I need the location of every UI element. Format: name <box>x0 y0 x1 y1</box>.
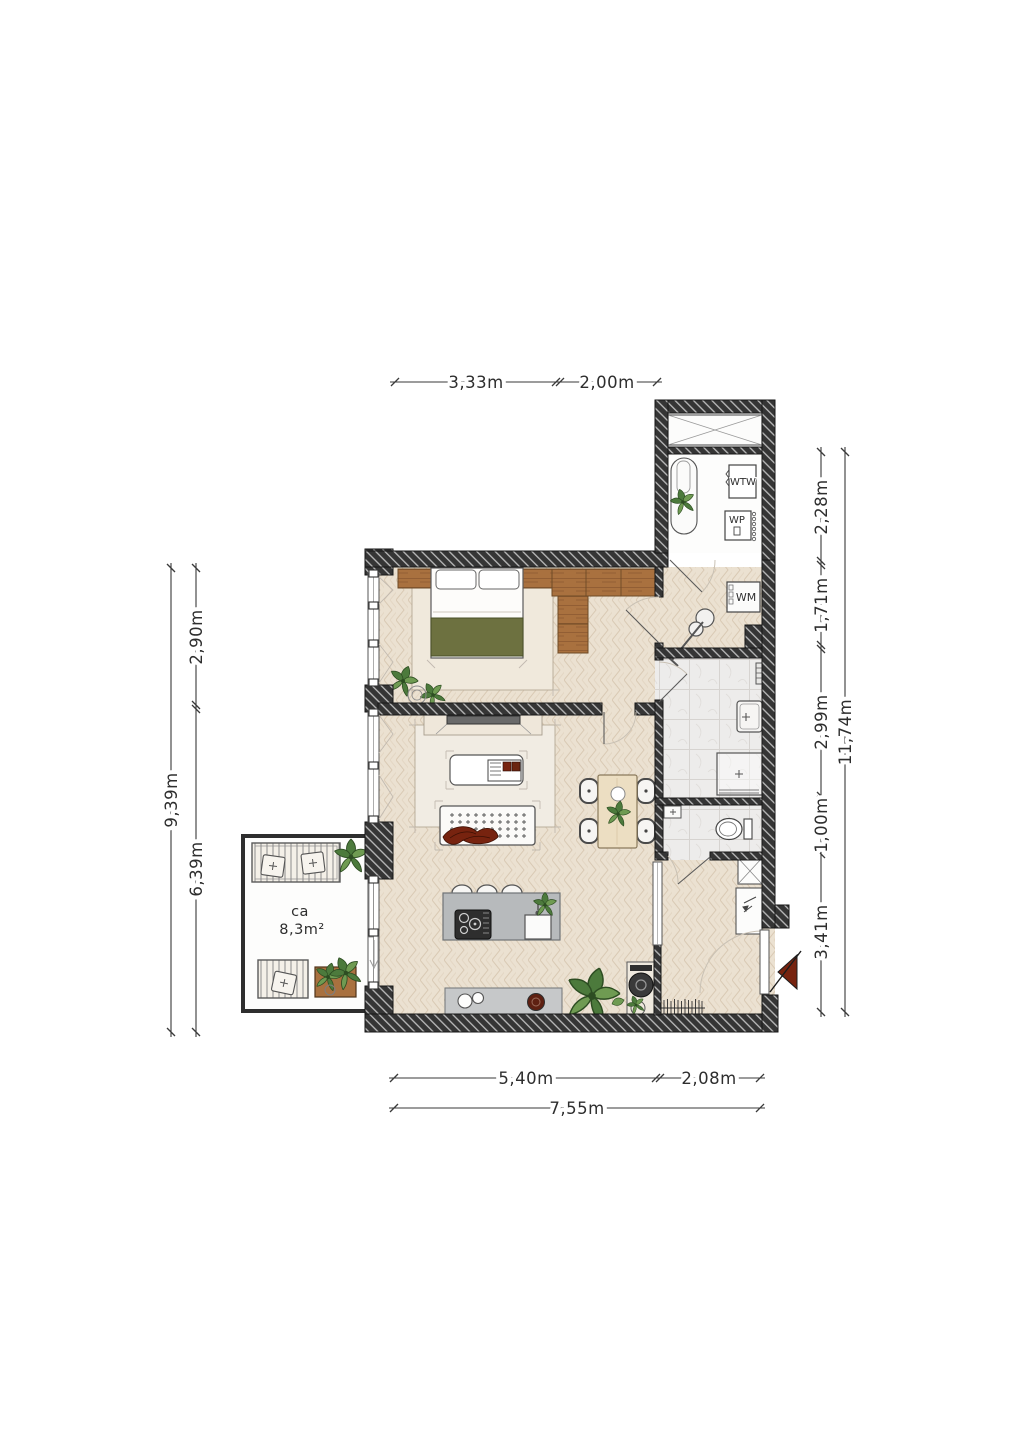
wtw-unit: WTW <box>726 465 756 498</box>
nightstand-left <box>398 569 431 588</box>
tv-unit <box>424 713 542 735</box>
dim-left-2: 6,39m <box>187 841 206 896</box>
kitchen-counter <box>445 988 562 1016</box>
dim-bottom: 5,40m 2,08m 7,55m <box>389 1069 765 1118</box>
balcony-bench-top <box>252 843 340 882</box>
dim-right-4: 1,00m <box>812 797 831 852</box>
bed-blanket <box>431 618 523 656</box>
dim-bottom-2: 2,08m <box>681 1069 736 1088</box>
dim-top: 3,33m 2,00m <box>390 373 662 392</box>
bathroom-sink <box>737 701 762 732</box>
balcony-sliding-door <box>368 876 379 989</box>
intercom-box <box>736 888 762 934</box>
toilet-sink <box>664 806 681 818</box>
storage-shaft <box>668 415 762 445</box>
shower <box>717 753 762 795</box>
coffee-table <box>446 751 527 789</box>
tv <box>447 716 520 724</box>
dim-right-5: 3,41m <box>812 904 831 959</box>
dim-right: 2,28m 1,71m 2,99m 1,00m 3,41m 11,74m <box>812 447 855 1017</box>
dim-right-2: 1,71m <box>812 577 831 632</box>
dim-top-2: 2,00m <box>579 373 634 392</box>
floor-plan-page: ca 8,3m² <box>0 0 1018 1440</box>
dim-top-1: 3,33m <box>448 373 503 392</box>
sofa <box>435 801 540 850</box>
dim-left-1: 2,90m <box>187 609 206 664</box>
dim-right-1: 2,28m <box>812 479 831 534</box>
nightstand-right <box>523 569 552 588</box>
bed <box>427 568 527 668</box>
hall-glass-door <box>653 862 662 945</box>
meter-cupboard <box>736 858 762 934</box>
floor-plan-drawing: ca 8,3m² <box>0 0 1018 1440</box>
bar-stools <box>452 885 522 893</box>
balcony-area-label: 8,3m² <box>279 922 325 938</box>
balcony: ca 8,3m² <box>243 836 368 1011</box>
dim-bottom-total: 7,55m <box>549 1099 604 1118</box>
dim-right-total: 11,74m <box>836 699 855 765</box>
balcony-bench-bottom <box>258 960 308 998</box>
dim-bottom-1: 5,40m <box>498 1069 553 1088</box>
dim-left: 9,39m 2,90m 6,39m <box>162 563 206 1037</box>
towel-radiator <box>756 663 762 684</box>
dim-left-total: 9,39m <box>162 772 181 827</box>
wp-unit: WP <box>725 511 756 541</box>
toilet <box>716 819 752 840</box>
wtw-label: WTW <box>730 477 756 488</box>
wm-label: WM <box>736 591 756 604</box>
cooktop <box>455 910 491 939</box>
dim-right-3: 2,99m <box>812 694 831 749</box>
wp-label: WP <box>729 515 745 526</box>
washing-machine: WM <box>727 582 760 612</box>
balcony-area-label-prefix: ca <box>291 904 309 920</box>
sofa-throw <box>443 827 498 845</box>
